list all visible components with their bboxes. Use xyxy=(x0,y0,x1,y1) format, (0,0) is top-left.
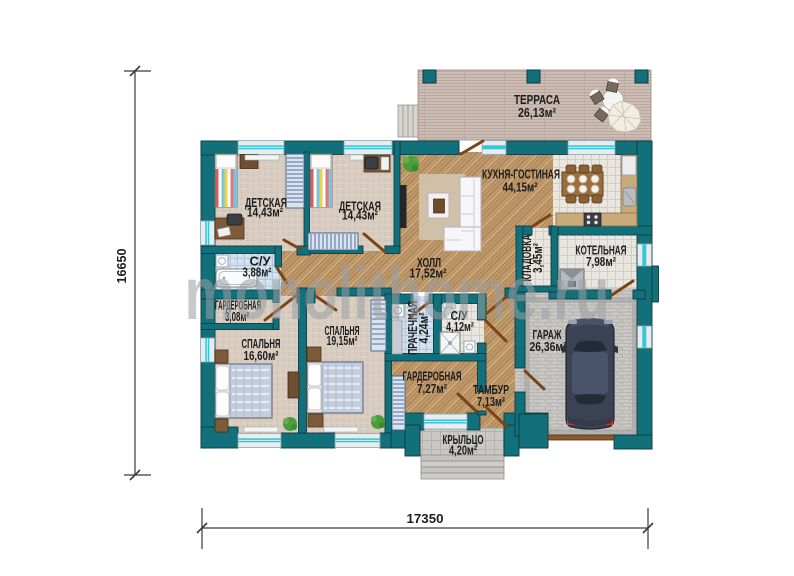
svg-text:16650: 16650 xyxy=(115,248,129,283)
svg-text:26,36м²: 26,36м² xyxy=(530,340,567,354)
svg-text:7,13м²: 7,13м² xyxy=(477,395,505,409)
svg-text:17350: 17350 xyxy=(407,512,444,526)
svg-text:26,13м²: 26,13м² xyxy=(518,106,556,120)
svg-text:44,15м²: 44,15м² xyxy=(503,180,539,195)
svg-text:14,43м²: 14,43м² xyxy=(247,206,283,220)
svg-text:16,60м²: 16,60м² xyxy=(244,349,279,363)
svg-text:19,15м²: 19,15м² xyxy=(327,334,358,348)
svg-text:14,43м²: 14,43м² xyxy=(342,209,378,223)
svg-text:ТЕРРАСА: ТЕРРАСА xyxy=(514,93,560,107)
svg-text:7,27м²: 7,27м² xyxy=(417,382,447,396)
svg-text:4,20м²: 4,20м² xyxy=(449,444,477,458)
svg-text:monolithome.ru: monolithome.ru xyxy=(185,252,610,335)
